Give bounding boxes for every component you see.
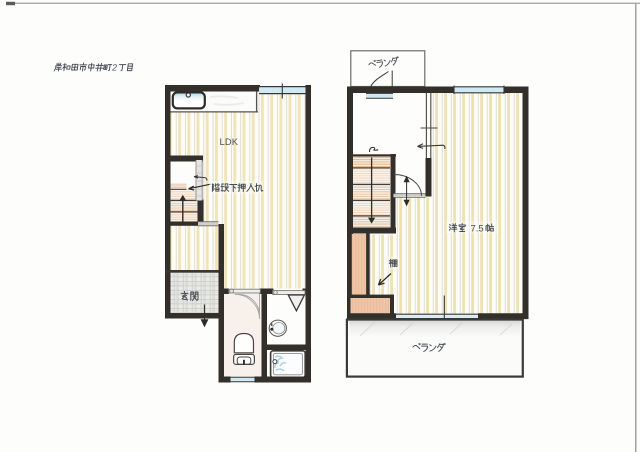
svg-text:7.5: 7.5 [471, 223, 484, 234]
svg-text:LDK: LDK [220, 137, 239, 147]
